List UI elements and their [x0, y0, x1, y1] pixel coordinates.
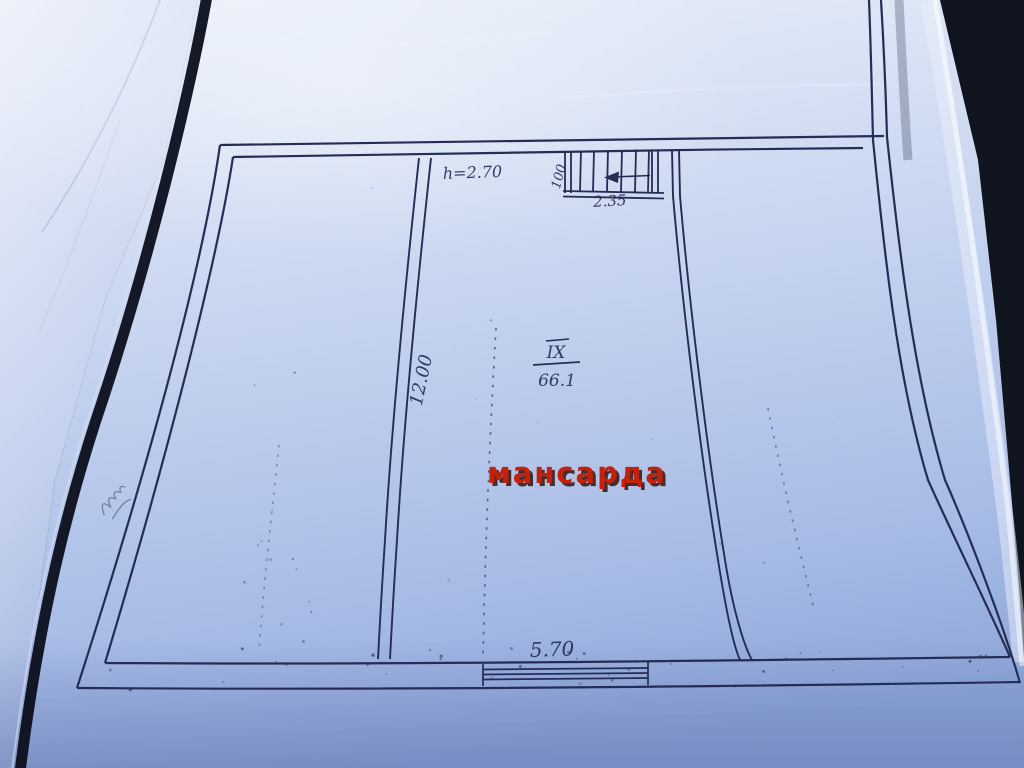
speckle [763, 562, 765, 564]
speckle [269, 558, 272, 561]
speckle [222, 681, 224, 683]
front-dimension-label: 5.70 [529, 636, 575, 662]
floor-plan-photo-canvas: h=2.70 100 2.35 12.00 5.70 IX 66.1 манса… [0, 0, 1024, 768]
speckle [292, 558, 294, 560]
speckle [519, 665, 522, 668]
speckle [285, 663, 288, 666]
speckle [567, 651, 570, 654]
speckle [302, 640, 305, 643]
speckle [977, 670, 978, 671]
speckle [635, 661, 637, 663]
speckle [832, 670, 833, 671]
watermark-text: мансарда [487, 456, 667, 490]
speckle [440, 658, 442, 660]
speckle [537, 422, 538, 423]
speckle [367, 663, 369, 665]
speckle [670, 663, 672, 665]
speckle [275, 661, 276, 662]
speckle [295, 568, 297, 570]
speckle [453, 347, 454, 348]
speckle [579, 682, 582, 685]
speckle [583, 652, 586, 655]
speckle [799, 652, 801, 654]
speckle [979, 655, 982, 658]
speckle [503, 687, 504, 688]
speckle [611, 679, 614, 682]
speckle [509, 661, 511, 663]
speckle [308, 601, 310, 603]
speckle [476, 399, 477, 400]
speckle [253, 384, 255, 386]
speckle [310, 611, 312, 613]
speckle [439, 655, 442, 658]
speckle [734, 687, 735, 688]
ceiling-height-label: h=2.70 [442, 162, 502, 183]
speckle [129, 688, 132, 691]
speckle [491, 677, 493, 679]
speckle [510, 647, 513, 650]
speckle [837, 416, 838, 417]
speckle [109, 669, 112, 672]
speckle [576, 658, 577, 659]
speckle [762, 670, 765, 673]
speckle [380, 661, 382, 663]
speckle [243, 581, 246, 584]
speckle [538, 469, 540, 471]
room-area-label: 66.1 [538, 371, 576, 391]
speckle [372, 188, 374, 190]
speckle [393, 662, 394, 663]
speckle [608, 675, 609, 676]
photo-of-floor-plan: h=2.70 100 2.35 12.00 5.70 IX 66.1 манса… [0, 0, 1024, 768]
speckle [386, 673, 388, 675]
speckle [630, 481, 631, 482]
speckle [985, 655, 988, 658]
speckle [785, 658, 788, 661]
speckle [371, 653, 374, 656]
speckle [651, 438, 653, 440]
speckle [272, 509, 273, 510]
speckle [627, 669, 629, 671]
speckle [261, 540, 263, 542]
watermark: мансарда мансарда [487, 456, 670, 493]
speckle [429, 649, 431, 651]
speckle [490, 319, 492, 321]
speckle [969, 660, 972, 663]
speckle [294, 372, 296, 374]
speckle [524, 666, 526, 668]
speckle [448, 579, 450, 581]
speckle [257, 544, 259, 546]
speckle [537, 581, 538, 582]
speckle [719, 543, 721, 545]
speckle [280, 623, 283, 626]
speckle [902, 666, 904, 668]
room-number-label: IX [546, 343, 567, 363]
stair-run-label: 2.35 [592, 191, 627, 211]
speckle [241, 647, 244, 650]
speckle [819, 651, 820, 652]
speckle [496, 679, 498, 681]
